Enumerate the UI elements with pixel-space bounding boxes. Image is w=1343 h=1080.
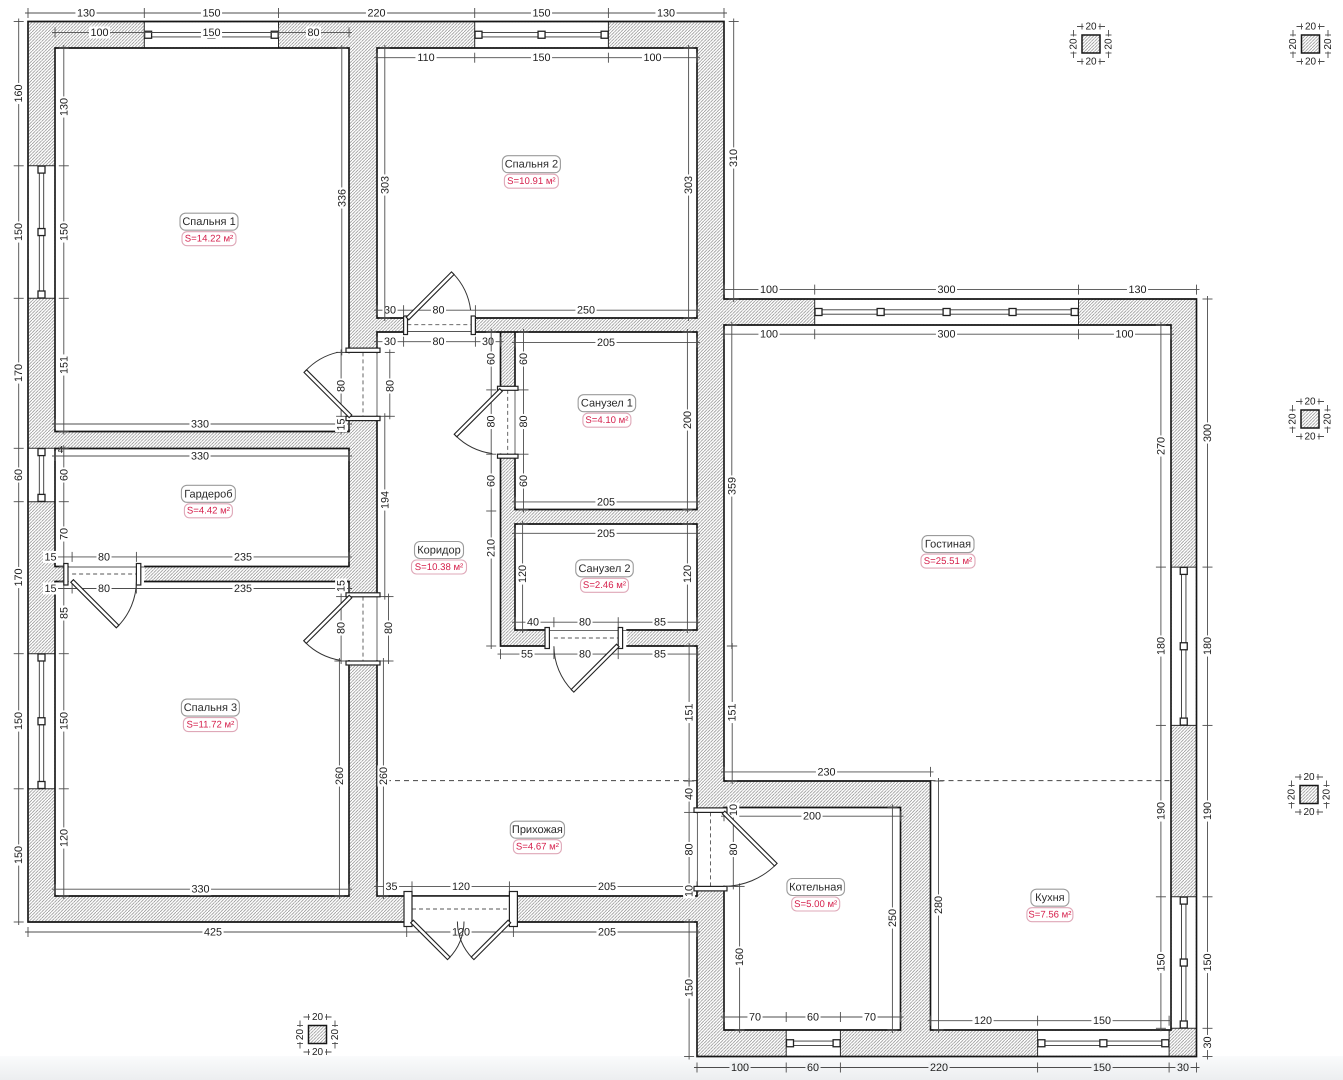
svg-text:120: 120 [452, 927, 470, 939]
svg-text:130: 130 [657, 8, 675, 20]
svg-text:150: 150 [1093, 1015, 1111, 1027]
svg-text:300: 300 [937, 329, 955, 341]
svg-text:280: 280 [933, 896, 945, 914]
svg-text:235: 235 [234, 583, 252, 595]
svg-text:150: 150 [58, 712, 70, 730]
svg-text:20: 20 [295, 1029, 306, 1041]
svg-text:220: 220 [367, 8, 385, 20]
svg-text:20: 20 [1305, 22, 1317, 33]
svg-text:60: 60 [13, 469, 25, 481]
svg-text:150: 150 [202, 8, 220, 20]
svg-text:205: 205 [597, 528, 615, 540]
svg-text:20: 20 [312, 1047, 324, 1058]
svg-text:70: 70 [749, 1012, 761, 1024]
svg-text:S=25.51 м²: S=25.51 м² [924, 556, 973, 567]
svg-text:20: 20 [1104, 38, 1115, 50]
svg-text:40: 40 [527, 617, 539, 629]
svg-text:205: 205 [598, 881, 616, 893]
svg-text:150: 150 [13, 223, 25, 241]
svg-text:130: 130 [58, 98, 70, 116]
svg-text:150: 150 [13, 846, 25, 864]
svg-text:100: 100 [760, 329, 778, 341]
svg-text:S=5.00 м²: S=5.00 м² [794, 899, 838, 910]
svg-text:100: 100 [1115, 329, 1133, 341]
svg-text:S=14.22 м²: S=14.22 м² [185, 234, 234, 245]
svg-text:60: 60 [807, 1062, 819, 1074]
svg-text:80: 80 [579, 649, 591, 661]
svg-text:20: 20 [1303, 807, 1315, 818]
svg-text:20: 20 [1085, 22, 1097, 33]
svg-text:303: 303 [379, 176, 391, 194]
svg-text:Гостиная: Гостиная [925, 539, 971, 551]
svg-text:S=10.91 м²: S=10.91 м² [507, 176, 556, 187]
svg-text:80: 80 [432, 336, 444, 348]
svg-text:S=2.46 м²: S=2.46 м² [583, 580, 627, 591]
svg-text:80: 80 [98, 551, 110, 563]
svg-text:20: 20 [1305, 57, 1317, 68]
svg-text:425: 425 [204, 927, 222, 939]
svg-text:20: 20 [330, 1029, 341, 1041]
svg-text:20: 20 [1069, 38, 1080, 50]
svg-text:S=4.10 м²: S=4.10 м² [585, 415, 629, 426]
svg-text:260: 260 [378, 767, 390, 785]
svg-text:Санузел 2: Санузел 2 [578, 563, 630, 575]
svg-text:100: 100 [643, 52, 661, 64]
svg-text:20: 20 [1288, 38, 1299, 50]
svg-text:80: 80 [518, 415, 530, 427]
svg-text:200: 200 [682, 411, 694, 429]
svg-text:170: 170 [13, 568, 25, 586]
svg-text:180: 180 [1155, 637, 1167, 655]
svg-text:200: 200 [803, 811, 821, 823]
svg-text:85: 85 [654, 617, 666, 629]
svg-text:30: 30 [482, 336, 494, 348]
svg-text:150: 150 [1155, 953, 1167, 971]
svg-text:80: 80 [384, 380, 396, 392]
svg-text:60: 60 [486, 475, 498, 487]
svg-text:20: 20 [1303, 772, 1315, 783]
svg-text:S=10.38 м²: S=10.38 м² [415, 562, 464, 573]
svg-text:150: 150 [202, 27, 220, 39]
svg-text:330: 330 [191, 419, 209, 431]
svg-text:80: 80 [432, 305, 444, 317]
svg-text:150: 150 [684, 979, 696, 997]
svg-text:120: 120 [974, 1015, 992, 1027]
svg-text:205: 205 [597, 337, 615, 349]
svg-text:30: 30 [1202, 1036, 1214, 1048]
svg-text:15: 15 [44, 583, 56, 595]
svg-text:80: 80 [98, 583, 110, 595]
svg-text:303: 303 [683, 176, 695, 194]
svg-text:80: 80 [486, 415, 498, 427]
svg-text:70: 70 [864, 1012, 876, 1024]
svg-text:10: 10 [728, 804, 740, 816]
svg-text:80: 80 [336, 380, 348, 392]
svg-text:Кухня: Кухня [1035, 892, 1064, 904]
svg-text:30: 30 [1177, 1062, 1189, 1074]
svg-text:80: 80 [307, 27, 319, 39]
svg-text:60: 60 [518, 353, 530, 365]
svg-text:151: 151 [727, 703, 739, 721]
svg-text:120: 120 [58, 829, 70, 847]
svg-text:20: 20 [1288, 413, 1299, 425]
svg-text:S=11.72 м²: S=11.72 м² [187, 719, 236, 730]
svg-text:150: 150 [532, 52, 550, 64]
svg-text:190: 190 [1155, 802, 1167, 820]
svg-text:70: 70 [58, 528, 70, 540]
svg-text:150: 150 [532, 8, 550, 20]
svg-text:20: 20 [1287, 789, 1298, 801]
svg-text:Спальня 1: Спальня 1 [182, 216, 235, 228]
svg-text:20: 20 [312, 1012, 324, 1023]
svg-text:35: 35 [385, 881, 397, 893]
svg-text:180: 180 [1202, 637, 1214, 655]
svg-text:80: 80 [579, 617, 591, 629]
svg-text:80: 80 [336, 622, 348, 634]
svg-text:55: 55 [521, 649, 533, 661]
svg-text:110: 110 [417, 52, 434, 64]
svg-text:15: 15 [336, 580, 348, 592]
svg-text:270: 270 [1155, 437, 1167, 455]
svg-text:20: 20 [1323, 413, 1334, 425]
svg-text:Спальня 3: Спальня 3 [184, 702, 237, 714]
svg-text:20: 20 [1322, 789, 1333, 801]
svg-text:150: 150 [58, 223, 70, 241]
svg-text:160: 160 [13, 84, 25, 102]
svg-text:60: 60 [518, 475, 530, 487]
svg-text:Коридор: Коридор [417, 545, 460, 557]
svg-text:194: 194 [379, 491, 391, 509]
svg-text:100: 100 [731, 1062, 749, 1074]
svg-text:20: 20 [1085, 57, 1097, 68]
svg-text:330: 330 [191, 451, 209, 463]
svg-text:359: 359 [726, 477, 738, 495]
svg-text:150: 150 [1093, 1062, 1111, 1074]
svg-text:60: 60 [807, 1012, 819, 1024]
svg-text:250: 250 [887, 909, 899, 927]
svg-text:205: 205 [597, 496, 615, 508]
svg-text:80: 80 [728, 843, 740, 855]
svg-text:4: 4 [58, 445, 64, 456]
svg-text:80: 80 [383, 622, 395, 634]
svg-text:85: 85 [654, 649, 666, 661]
svg-text:300: 300 [1202, 424, 1214, 442]
svg-text:235: 235 [234, 551, 252, 563]
svg-text:330: 330 [191, 884, 209, 896]
svg-text:20: 20 [1323, 38, 1334, 50]
svg-text:Прихожая: Прихожая [512, 824, 563, 836]
svg-text:310: 310 [728, 149, 740, 167]
svg-text:230: 230 [817, 766, 835, 778]
svg-text:120: 120 [452, 881, 470, 893]
svg-text:20: 20 [1304, 397, 1316, 408]
svg-text:20: 20 [1304, 432, 1316, 443]
svg-text:30: 30 [384, 336, 396, 348]
svg-text:130: 130 [77, 8, 95, 20]
svg-text:40: 40 [684, 788, 696, 800]
svg-text:S=4.67 м²: S=4.67 м² [516, 842, 560, 853]
svg-text:15: 15 [44, 551, 56, 563]
svg-text:120: 120 [517, 565, 529, 583]
svg-text:60: 60 [58, 469, 70, 481]
svg-text:190: 190 [1202, 802, 1214, 820]
svg-text:151: 151 [684, 703, 696, 721]
svg-text:260: 260 [334, 767, 346, 785]
svg-text:170: 170 [13, 364, 25, 382]
svg-text:Спальня 2: Спальня 2 [505, 159, 558, 171]
svg-text:220: 220 [930, 1062, 948, 1074]
svg-text:160: 160 [734, 948, 746, 966]
svg-text:100: 100 [90, 27, 108, 39]
svg-text:Гардероб: Гардероб [184, 488, 232, 500]
svg-text:250: 250 [577, 305, 595, 317]
svg-text:100: 100 [760, 284, 778, 296]
svg-text:60: 60 [486, 353, 498, 365]
svg-text:80: 80 [684, 843, 696, 855]
svg-text:205: 205 [598, 927, 616, 939]
svg-text:120: 120 [682, 565, 694, 583]
svg-text:150: 150 [13, 712, 25, 730]
svg-text:210: 210 [486, 539, 498, 557]
svg-text:S=4.42 м²: S=4.42 м² [187, 506, 231, 517]
svg-text:151: 151 [58, 356, 70, 374]
svg-text:30: 30 [384, 305, 396, 317]
svg-text:S=7.56 м²: S=7.56 м² [1028, 910, 1072, 921]
svg-text:130: 130 [1128, 284, 1146, 296]
svg-text:Котельная: Котельная [789, 882, 842, 894]
svg-text:150: 150 [1202, 953, 1214, 971]
svg-text:300: 300 [937, 284, 955, 296]
svg-text:85: 85 [58, 607, 70, 619]
svg-text:336: 336 [336, 189, 348, 207]
svg-text:Санузел 1: Санузел 1 [581, 398, 633, 410]
